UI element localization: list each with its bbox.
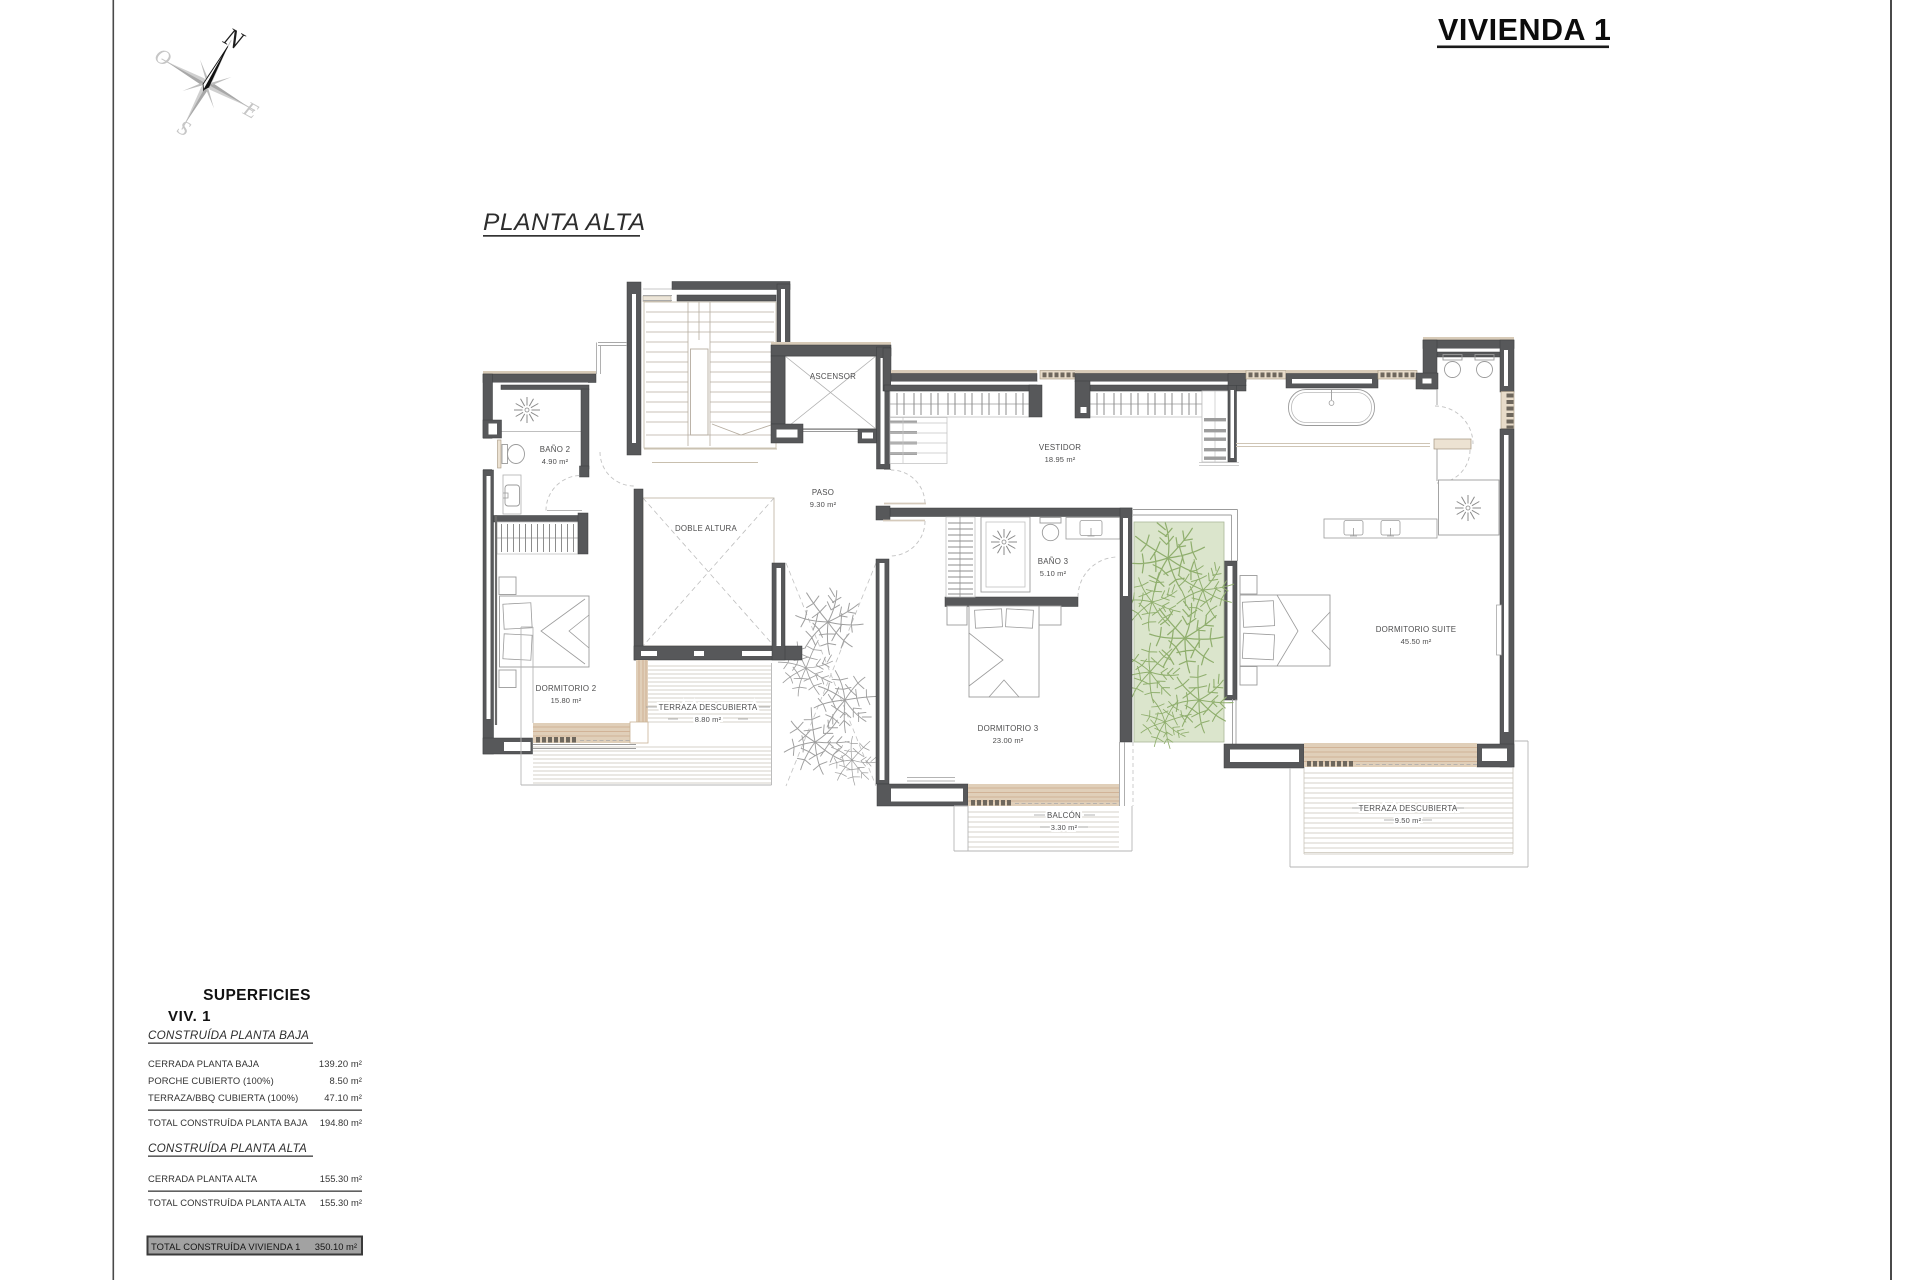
svg-text:9.50 m²: 9.50 m² (1395, 816, 1422, 825)
svg-text:TOTAL CONSTRUÍDA VIVIENDA 1: TOTAL CONSTRUÍDA VIVIENDA 1 (151, 1241, 300, 1252)
svg-text:SUPERFICIES: SUPERFICIES (203, 987, 311, 1004)
svg-text:TERRAZA DESCUBIERTA: TERRAZA DESCUBIERTA (659, 703, 758, 712)
svg-text:DORMITORIO 2: DORMITORIO 2 (536, 684, 597, 693)
svg-text:BALCÓN: BALCÓN (1047, 811, 1081, 820)
svg-text:CERRADA PLANTA ALTA: CERRADA PLANTA ALTA (148, 1173, 258, 1184)
svg-text:DOBLE ALTURA: DOBLE ALTURA (675, 524, 738, 533)
svg-text:VIVIENDA 1: VIVIENDA 1 (1438, 13, 1611, 47)
svg-text:350.10 m²: 350.10 m² (315, 1241, 357, 1252)
svg-text:CONSTRUÍDA PLANTA BAJA: CONSTRUÍDA PLANTA BAJA (148, 1029, 309, 1042)
svg-text:47.10 m²: 47.10 m² (324, 1092, 362, 1103)
svg-text:5.10 m²: 5.10 m² (1040, 569, 1067, 578)
svg-text:DORMITORIO SUITE: DORMITORIO SUITE (1376, 625, 1457, 634)
svg-text:CONSTRUÍDA PLANTA ALTA: CONSTRUÍDA PLANTA ALTA (148, 1142, 307, 1155)
svg-text:TERRAZA DESCUBIERTA: TERRAZA DESCUBIERTA (1359, 804, 1458, 813)
svg-text:CERRADA PLANTA BAJA: CERRADA PLANTA BAJA (148, 1058, 260, 1069)
svg-text:8.80 m²: 8.80 m² (695, 715, 722, 724)
svg-text:9.30 m²: 9.30 m² (810, 500, 837, 509)
svg-text:PORCHE CUBIERTO (100%): PORCHE CUBIERTO (100%) (148, 1075, 274, 1086)
svg-text:TOTAL CONSTRUÍDA PLANTA BAJA: TOTAL CONSTRUÍDA PLANTA BAJA (148, 1117, 308, 1128)
svg-text:BAÑO 3: BAÑO 3 (1038, 557, 1069, 566)
svg-text:4.90 m²: 4.90 m² (542, 457, 569, 466)
svg-text:VIV. 1: VIV. 1 (168, 1008, 211, 1025)
svg-text:18.95 m²: 18.95 m² (1045, 455, 1076, 464)
svg-text:PLANTA ALTA: PLANTA ALTA (483, 209, 646, 236)
svg-text:TOTAL CONSTRUÍDA PLANTA ALTA: TOTAL CONSTRUÍDA PLANTA ALTA (148, 1197, 307, 1208)
svg-text:DORMITORIO 3: DORMITORIO 3 (978, 724, 1039, 733)
svg-text:VESTIDOR: VESTIDOR (1039, 443, 1081, 452)
svg-text:15.80 m²: 15.80 m² (551, 696, 582, 705)
svg-text:TERRAZA/BBQ CUBIERTA (100%): TERRAZA/BBQ CUBIERTA (100%) (148, 1092, 298, 1103)
svg-text:194.80 m²: 194.80 m² (320, 1117, 362, 1128)
svg-text:3.30 m²: 3.30 m² (1051, 823, 1078, 832)
svg-text:45.50 m²: 45.50 m² (1401, 637, 1432, 646)
svg-text:8.50 m²: 8.50 m² (330, 1075, 362, 1086)
svg-text:23.00 m²: 23.00 m² (993, 736, 1024, 745)
svg-text:BAÑO 2: BAÑO 2 (540, 445, 570, 454)
svg-text:PASO: PASO (812, 488, 834, 497)
svg-text:139.20 m²: 139.20 m² (319, 1058, 362, 1069)
svg-text:155.30 m²: 155.30 m² (320, 1173, 362, 1184)
svg-text:155.30 m²: 155.30 m² (320, 1197, 362, 1208)
svg-text:ASCENSOR: ASCENSOR (810, 372, 856, 381)
